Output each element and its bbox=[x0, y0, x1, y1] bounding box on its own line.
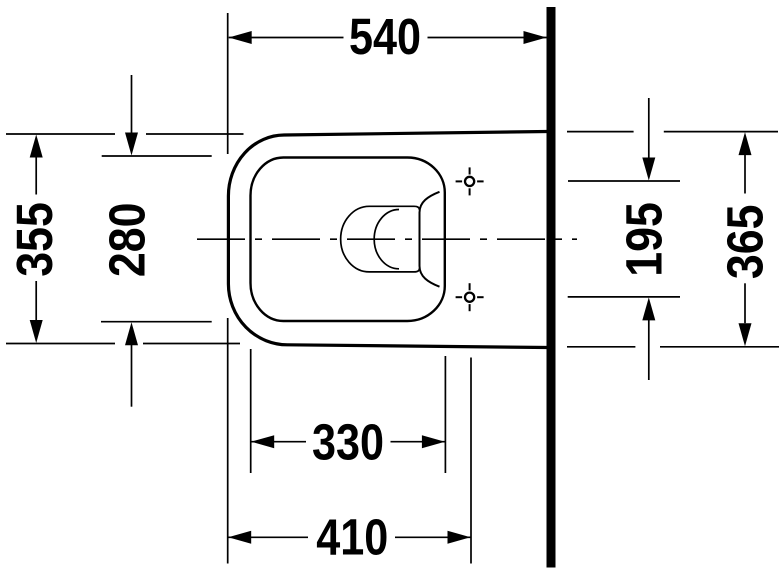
svg-text:365: 365 bbox=[717, 205, 775, 280]
svg-text:330: 330 bbox=[312, 414, 384, 471]
svg-text:355: 355 bbox=[6, 202, 64, 277]
svg-text:410: 410 bbox=[316, 509, 388, 566]
svg-text:540: 540 bbox=[349, 8, 421, 65]
svg-text:280: 280 bbox=[99, 203, 157, 278]
svg-text:195: 195 bbox=[616, 202, 674, 277]
